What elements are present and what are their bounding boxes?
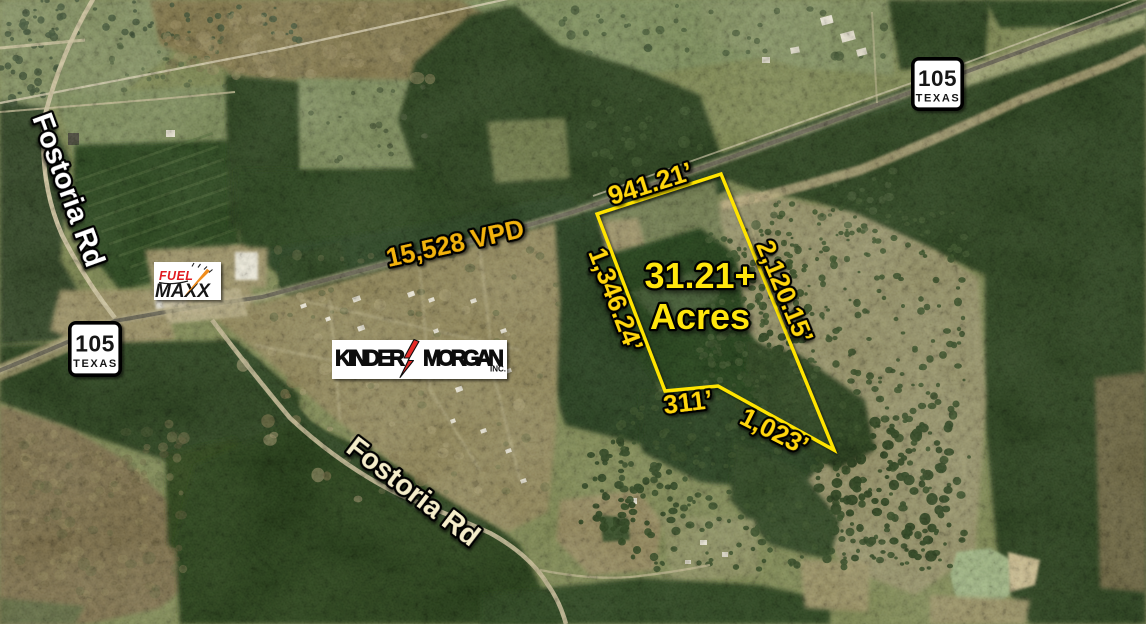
svg-text:105: 105 — [918, 66, 957, 91]
svg-text:TEXAS: TEXAS — [916, 93, 961, 105]
svg-text:KINDER: KINDER — [335, 346, 405, 371]
svg-text:105: 105 — [75, 331, 115, 357]
svg-text:INC.: INC. — [490, 365, 506, 374]
svg-text:31.21+: 31.21+ — [644, 255, 755, 296]
svg-text:MAXX: MAXX — [155, 281, 211, 302]
svg-text:TEXAS: TEXAS — [73, 358, 118, 370]
svg-text:Acres: Acres — [650, 296, 750, 337]
svg-text:311’: 311’ — [662, 384, 714, 420]
